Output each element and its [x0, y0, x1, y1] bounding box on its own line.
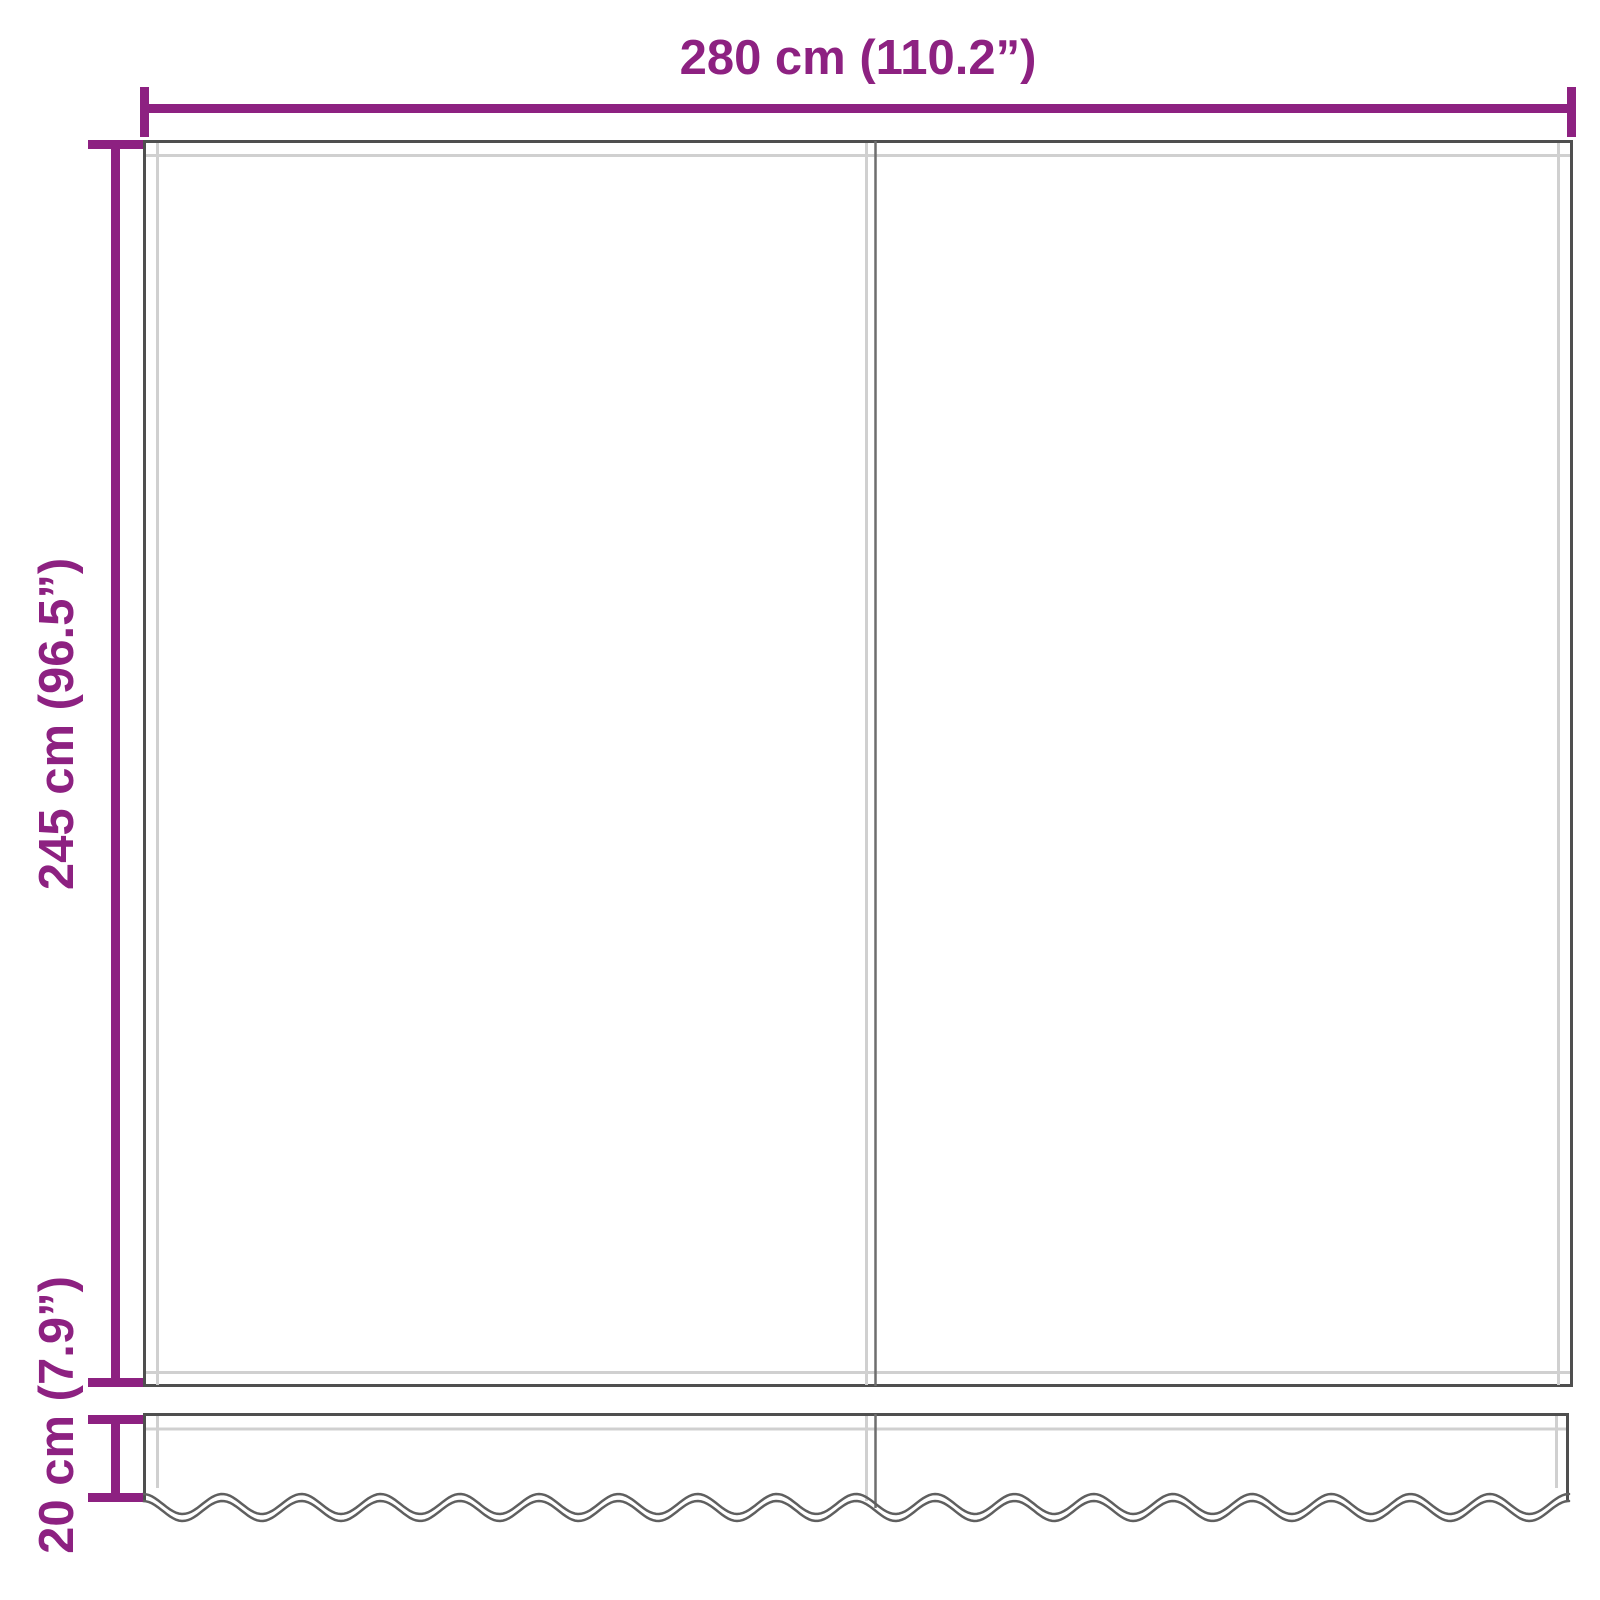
height-dimension-cap-top — [88, 140, 143, 149]
width-dimension-cap-left — [140, 87, 149, 137]
main-panel-outline — [145, 142, 1572, 1386]
width-dimension-label: 280 cm (110.2”) — [144, 33, 1572, 83]
valance-dimension-label: 20 cm (7.9”) — [32, 1276, 82, 1554]
width-dimension-cap-right — [1567, 87, 1576, 137]
height-dimension-line — [111, 144, 120, 1382]
awning-dimension-diagram: 280 cm (110.2”) 245 cm (96.5”) 20 cm (7.… — [0, 0, 1600, 1600]
valance-dimension-line — [111, 1419, 120, 1498]
valance-dimension-cap-bottom — [88, 1493, 143, 1502]
scalloped-edge-outer — [143, 1494, 1569, 1514]
scalloped-edge-inner — [143, 1501, 1569, 1521]
valance-dimension-cap-top — [88, 1415, 143, 1424]
height-dimension-label: 245 cm (96.5”) — [32, 558, 82, 890]
fabric-illustration — [0, 0, 1600, 1600]
height-dimension-cap-bottom — [88, 1378, 143, 1387]
width-dimension-line — [144, 104, 1572, 113]
